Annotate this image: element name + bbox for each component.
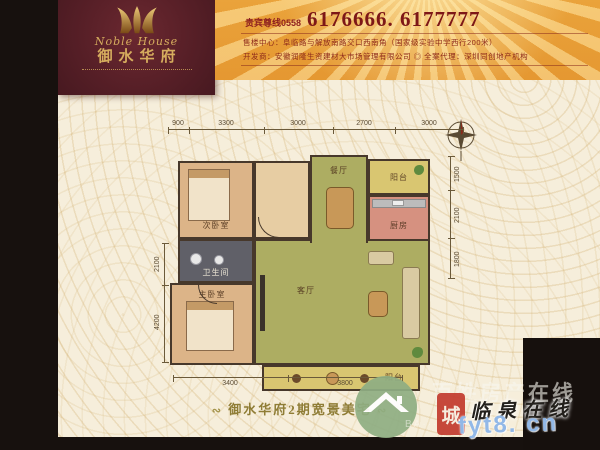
dimension-line-top: 900 3300 3000 2700 3000 bbox=[168, 129, 464, 130]
phone-numbers: 6176666. 6177777 bbox=[307, 9, 481, 30]
room-living: 客厅 bbox=[254, 239, 430, 365]
room-label-living: 客厅 bbox=[286, 285, 326, 296]
room-label-kitchen: 厨房 bbox=[370, 220, 428, 231]
header-divider-bottom bbox=[241, 65, 588, 66]
header-divider-top bbox=[241, 33, 588, 34]
flyer-sheet: Noble House 御水华府 贵宾尊线0558 6176666. 61777… bbox=[58, 0, 600, 437]
vip-hotline-label: 贵宾尊线0558 bbox=[245, 16, 301, 29]
advertisement-canvas: { "brand": { "name_en": "Noble House", "… bbox=[0, 0, 600, 450]
brand-rule bbox=[82, 69, 192, 70]
sofa-icon bbox=[402, 267, 420, 339]
dim-bottom-1: 3400 bbox=[213, 380, 247, 387]
header-banner: 贵宾尊线0558 6176666. 6177777 售楼中心：阜临路与解放南路交… bbox=[215, 0, 600, 80]
plant-icon bbox=[412, 347, 423, 358]
room-dining: 餐厅 bbox=[310, 155, 368, 243]
sales-center-line: 售楼中心：阜临路与解放南路交口西南角（国家级实验中学西行200米） bbox=[215, 37, 600, 48]
washbasin-icon bbox=[214, 255, 224, 265]
dim-right-3: 1800 bbox=[454, 242, 461, 276]
brand-name-en: Noble House bbox=[58, 36, 215, 48]
developer-line: 开发商：安徽润隆生资建材大市场管理有限公司 ◎ 全案代理：深圳同创地产机构 bbox=[215, 51, 600, 62]
dim-right-1: 1500 bbox=[454, 157, 461, 191]
dim-top-4: 2700 bbox=[347, 120, 381, 127]
room-bedroom2: 次卧室 bbox=[178, 161, 254, 239]
dimension-line-right: 1500 2100 1800 bbox=[450, 156, 451, 279]
sink-icon bbox=[392, 200, 404, 206]
crown-w-icon bbox=[115, 4, 159, 36]
dining-table-icon bbox=[326, 187, 354, 229]
brand-block: Noble House 御水华府 bbox=[58, 0, 215, 95]
dim-top-3: 3000 bbox=[281, 120, 315, 127]
watermark-domain: fyt8. cn bbox=[458, 409, 559, 440]
room-label-bath: 卫生间 bbox=[180, 267, 252, 278]
room-label-dining: 餐厅 bbox=[312, 165, 366, 176]
phone-row: 贵宾尊线0558 6176666. 6177777 bbox=[215, 0, 600, 30]
slogan-flourish-left: ∾ bbox=[212, 405, 223, 417]
floor-plan: 次卧室 餐厅 阳台 厨房 卫生间 主卧室 bbox=[158, 113, 468, 405]
tv-cabinet-icon bbox=[260, 275, 265, 331]
stool-icon bbox=[292, 374, 301, 383]
dim-right-2: 2100 bbox=[454, 198, 461, 232]
room-balcony-top: 阳台 bbox=[368, 159, 430, 195]
room-label-balcony-top: 阳台 bbox=[370, 172, 428, 183]
dim-top-5: 3000 bbox=[412, 120, 446, 127]
room-label-bedroom2: 次卧室 bbox=[180, 220, 252, 231]
room-bath: 卫生间 bbox=[178, 239, 254, 283]
dim-top-2: 3300 bbox=[209, 120, 243, 127]
room-kitchen: 厨房 bbox=[368, 195, 430, 241]
dim-top-1: 900 bbox=[161, 120, 195, 127]
brand-name-cn: 御水华府 bbox=[58, 48, 215, 66]
slogan-text: 御水华府2期宽景美宅 bbox=[228, 402, 372, 417]
dimension-line-left: 2100 4200 bbox=[164, 243, 165, 363]
toilet-icon bbox=[190, 253, 202, 265]
dim-left-2: 4200 bbox=[154, 305, 161, 339]
dim-left-1: 2100 bbox=[154, 247, 161, 281]
bed-icon bbox=[188, 169, 230, 221]
coffee-table-icon bbox=[368, 291, 388, 317]
master-bed-icon bbox=[186, 301, 234, 351]
armchair-icon bbox=[368, 251, 394, 265]
